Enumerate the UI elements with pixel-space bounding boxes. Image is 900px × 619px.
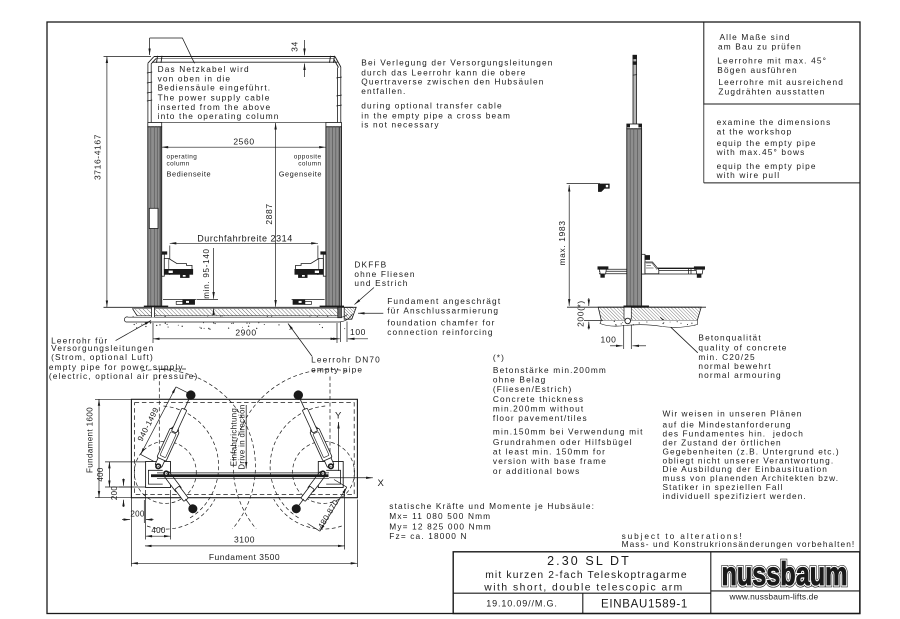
svg-text:(*): (*): [493, 352, 505, 362]
svg-text:Wir weisen in unseren Plänen: Wir weisen in unseren Plänen: [663, 408, 803, 418]
svg-text:400: 400: [151, 526, 165, 535]
svg-text:Fz= ca. 18000 N: Fz= ca. 18000 N: [389, 531, 467, 541]
svg-text:Betonstärke min.200mm: Betonstärke min.200mm: [493, 365, 607, 375]
svg-text:Fundament 3500: Fundament 3500: [209, 552, 280, 562]
svg-text:empty pipe: empty pipe: [311, 365, 363, 375]
svg-text:into the operating column: into the operating column: [158, 111, 280, 121]
svg-text:Y: Y: [335, 411, 342, 422]
svg-text:Leerrohr DN70: Leerrohr DN70: [311, 354, 381, 364]
svg-text:during optional transfer cable: during optional transfer cable: [361, 101, 503, 111]
svg-text:200: 200: [110, 486, 119, 500]
svg-text:is not necessary: is not necessary: [361, 120, 439, 130]
svg-text:(Strom, optional Luft): (Strom, optional Luft): [51, 352, 154, 362]
svg-text:2560: 2560: [233, 137, 254, 147]
svg-text:400: 400: [96, 467, 105, 481]
svg-text:version with base frame: version with base frame: [493, 456, 607, 466]
svg-text:with max.45° bows: with max.45° bows: [716, 147, 806, 157]
svg-text:max. 1983: max. 1983: [557, 220, 567, 265]
svg-text:100: 100: [601, 335, 617, 345]
svg-text:2887: 2887: [264, 203, 274, 224]
svg-text:Concrete thickness: Concrete thickness: [493, 394, 584, 404]
svg-text:Das Netzkabel wird: Das Netzkabel wird: [158, 64, 250, 74]
svg-text:Leerrohre mit ausreichend: Leerrohre mit ausreichend: [718, 77, 844, 87]
svg-text:individuell spezifiziert werde: individuell spezifiziert werden.: [663, 491, 807, 501]
svg-text:Grundrahmen oder Hilfsbügel: Grundrahmen oder Hilfsbügel: [493, 437, 633, 447]
svg-text:100: 100: [350, 327, 366, 337]
svg-text:3100: 3100: [234, 535, 255, 545]
svg-text:Fundament 1600: Fundament 1600: [86, 407, 95, 473]
svg-text:200(*): 200(*): [576, 300, 586, 327]
svg-text:mit kurzen 2-fach Teleskoptrag: mit kurzen 2-fach Teleskoptragarme: [485, 570, 688, 581]
svg-text:Durchfahrbreite 2314: Durchfahrbreite 2314: [197, 233, 293, 243]
svg-text:Bedienseite: Bedienseite: [167, 169, 212, 178]
svg-text:34: 34: [290, 41, 300, 52]
svg-text:Mass- und Konstrukrionsänderun: Mass- und Konstrukrionsänderungen vorbeh…: [622, 539, 856, 549]
svg-text:940-1499: 940-1499: [136, 406, 161, 443]
svg-text:connection reinforcing: connection reinforcing: [387, 327, 493, 337]
svg-text:column: column: [167, 160, 190, 167]
svg-text:with wire pull: with wire pull: [716, 170, 781, 180]
svg-text:200: 200: [130, 510, 144, 519]
svg-text:floor pavement/tiles: floor pavement/tiles: [493, 413, 588, 423]
svg-text:column: column: [298, 160, 321, 167]
svg-text:statische Kräfte und Momente j: statische Kräfte und Momente je Hubsäule…: [389, 501, 595, 511]
svg-text:with short, double telescopic: with short, double telescopic arm: [483, 582, 683, 593]
svg-text:Betonqualität: Betonqualität: [698, 333, 761, 343]
svg-text:für Anschlussarmierung: für Anschlussarmierung: [387, 305, 499, 315]
svg-text:Quertraverse zwischen den Hubs: Quertraverse zwischen den Hubsäulen: [361, 77, 544, 87]
svg-text:min.150mm bei Verwendung mit: min.150mm bei Verwendung mit: [493, 427, 644, 437]
svg-text:or additional bows: or additional bows: [493, 466, 581, 476]
svg-text:(electric, optional air pressu: (electric, optional air pressure): [49, 371, 199, 381]
svg-text:X: X: [378, 478, 385, 489]
svg-text:Gegenseite: Gegenseite: [279, 169, 322, 178]
svg-text:Bögen ausführen: Bögen ausführen: [717, 65, 797, 75]
svg-text:min. 95-140: min. 95-140: [202, 248, 211, 299]
svg-text:3716-4167: 3716-4167: [93, 134, 103, 180]
svg-text:Bei Verlegung der Versorgungsl: Bei Verlegung der Versorgungsleitungen: [361, 58, 553, 68]
svg-text:Mx= 11 080 500 Nmm: Mx= 11 080 500 Nmm: [389, 511, 491, 521]
svg-text:My= 12 825 000 Nmm: My= 12 825 000 Nmm: [389, 521, 492, 531]
svg-text:(Fliesen/Estrich): (Fliesen/Estrich): [493, 384, 572, 394]
svg-text:entfallen.: entfallen.: [361, 86, 406, 96]
svg-text:normal armouring: normal armouring: [698, 370, 781, 380]
svg-text:Zugdrähten ausstatten: Zugdrähten ausstatten: [718, 87, 825, 97]
svg-text:at the workshop: at the workshop: [717, 126, 793, 136]
svg-text:min.200mm without: min.200mm without: [493, 404, 584, 414]
svg-text:www.nussbaum-lifts.de: www.nussbaum-lifts.de: [729, 591, 819, 601]
svg-text:Drive in direction: Drive in direction: [238, 404, 247, 469]
svg-text:und Estrich: und Estrich: [354, 278, 408, 288]
svg-text:2900: 2900: [235, 328, 256, 338]
svg-text:Bediensäule eingeführt.: Bediensäule eingeführt.: [158, 83, 272, 93]
svg-text:quality of concrete: quality of concrete: [698, 342, 787, 352]
svg-text:EINBAU1589-1: EINBAU1589-1: [601, 598, 688, 610]
svg-text:The power supply cable: The power supply cable: [158, 92, 271, 102]
svg-text:am Bau zu prüfen: am Bau zu prüfen: [718, 42, 802, 52]
svg-text:2.30 SL DT: 2.30 SL DT: [547, 554, 631, 568]
svg-text:nussbaum: nussbaum: [722, 555, 848, 592]
svg-text:19.10.09//M.G.: 19.10.09//M.G.: [486, 598, 557, 608]
